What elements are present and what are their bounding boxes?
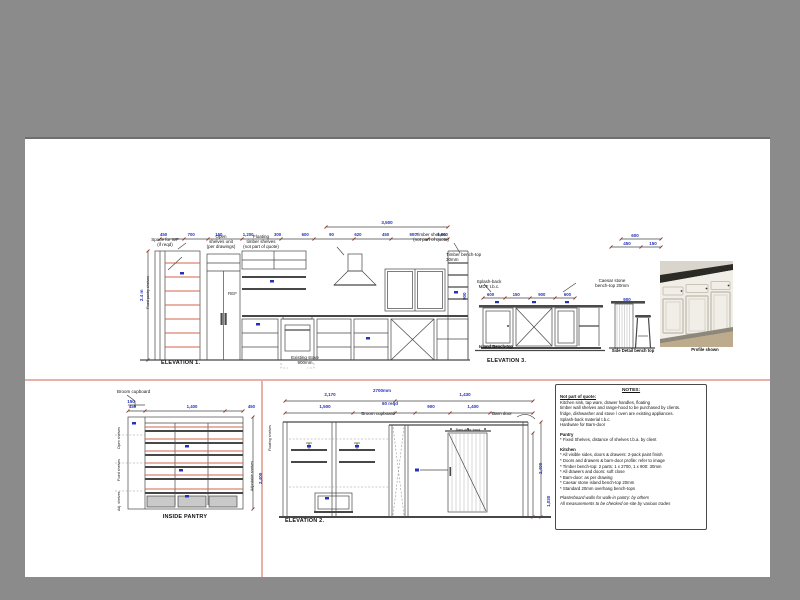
side-detail-label: Side Detail bench top: [611, 349, 655, 354]
dim-value: 150: [513, 292, 520, 297]
dim-value: 90: [329, 232, 334, 237]
island-benchtop-label: Island Bench-top: [479, 345, 521, 350]
fridge-text: REF: [228, 291, 237, 296]
label-open-shelves: Open shelves unit (per drawings): [201, 234, 241, 250]
pantry-left-label-2: Fixed shelves: [117, 459, 121, 481]
el2-dim-gap: 60 reqd: [377, 401, 403, 406]
dim-value: 900: [538, 292, 545, 297]
dim-value: 450: [160, 232, 167, 237]
drawing-sheet: REF: [25, 137, 770, 577]
dim-value: 450: [129, 404, 136, 409]
el2-dim-row1-right: 1,430: [450, 392, 480, 397]
elevation1-height-dim: 2.4 m: [139, 289, 144, 301]
pantry-broom-label: Broom cupboard: [117, 389, 159, 394]
notes-line: All measurements to be checked on-site b…: [560, 501, 702, 507]
horizontal-divider: [25, 379, 770, 381]
notes-box: NOTES:Not part of quote:Kitchen sink, ta…: [555, 384, 707, 530]
elevation2-drawing: [265, 387, 565, 532]
detail-dim-right: 150: [643, 241, 663, 246]
dim-value: 600: [302, 232, 309, 237]
el2-broom-label: Broom cupboard: [355, 411, 401, 416]
el2-dim-1500: 1,500: [310, 404, 340, 409]
pantry-right-label: Adjustable shelves: [250, 461, 254, 491]
dim-value: 700: [188, 232, 195, 237]
el2-right-dim-2: 1,030: [546, 496, 551, 507]
inside-pantry-title: INSIDE PANTRY: [151, 514, 219, 520]
el2-floating-label: Floating shelves: [268, 425, 272, 451]
elevation1-left-rotated-label: Fixed pantry shelves: [146, 276, 150, 309]
el2-dim-row1-left: 2,170: [315, 392, 345, 397]
pantry-left-label-3: Adj. shelves: [117, 492, 121, 511]
elevation3-dim-row: 600150900600: [487, 292, 571, 297]
pantry-left-label-1: Open shelves: [117, 427, 121, 449]
el2-track-label: Barn-door track: [445, 428, 491, 432]
profile-photo: [660, 261, 733, 347]
elevation3-title: ELEVATION 3.: [487, 358, 537, 364]
dim-value: 450: [248, 404, 255, 409]
label-space-wf: Space for WF (if reqd): [147, 237, 183, 247]
elevation1-overall-dim: 3,500: [325, 220, 449, 225]
el2-right-dim-1: 2,400: [538, 463, 543, 474]
label-caesar-stone: Caesar stone bench-top 20mm: [591, 278, 633, 288]
elevation2-title: ELEVATION 2.: [285, 518, 337, 524]
detail-dim-left: 450: [617, 241, 637, 246]
label-existing-stove: Existing stove 900mm: [283, 355, 327, 365]
label-splashback: Splash-back MDF t.b.c.: [474, 279, 504, 289]
elevation1-title: ELEVATION 1.: [161, 360, 211, 366]
stool-dim: 900: [617, 297, 637, 302]
dim-value: 620: [354, 232, 361, 237]
dim-value: 600: [487, 292, 494, 297]
screenshot-root: { "colors": { "background": "#8b8b8b", "…: [0, 0, 800, 600]
dim-value: 450: [382, 232, 389, 237]
el2-dim-1400: 1,400: [460, 404, 486, 409]
label-timber-shelves: Timber shelves (not part of quote): [407, 232, 455, 242]
label-bench-top: Timber bench-top 30mm: [446, 252, 486, 262]
pantry-right-dim: 2,400: [258, 473, 263, 484]
photo-caption: Profile shown: [685, 348, 725, 353]
dim-value: 1,400: [187, 404, 198, 409]
el2-dim-row1-center: 2700mm: [367, 388, 397, 393]
label-floating-shelves: Floating timber shelves (not part of quo…: [241, 234, 281, 250]
elevation1-right-dim: 900: [462, 292, 467, 300]
pantry-dim-row: 4501,400450: [129, 404, 255, 409]
dim-value: 600: [564, 292, 571, 297]
el2-barn-label: Barn door: [487, 411, 517, 416]
detail-dim-top: 600: [625, 233, 645, 238]
el2-dim-900: 900: [420, 404, 442, 409]
